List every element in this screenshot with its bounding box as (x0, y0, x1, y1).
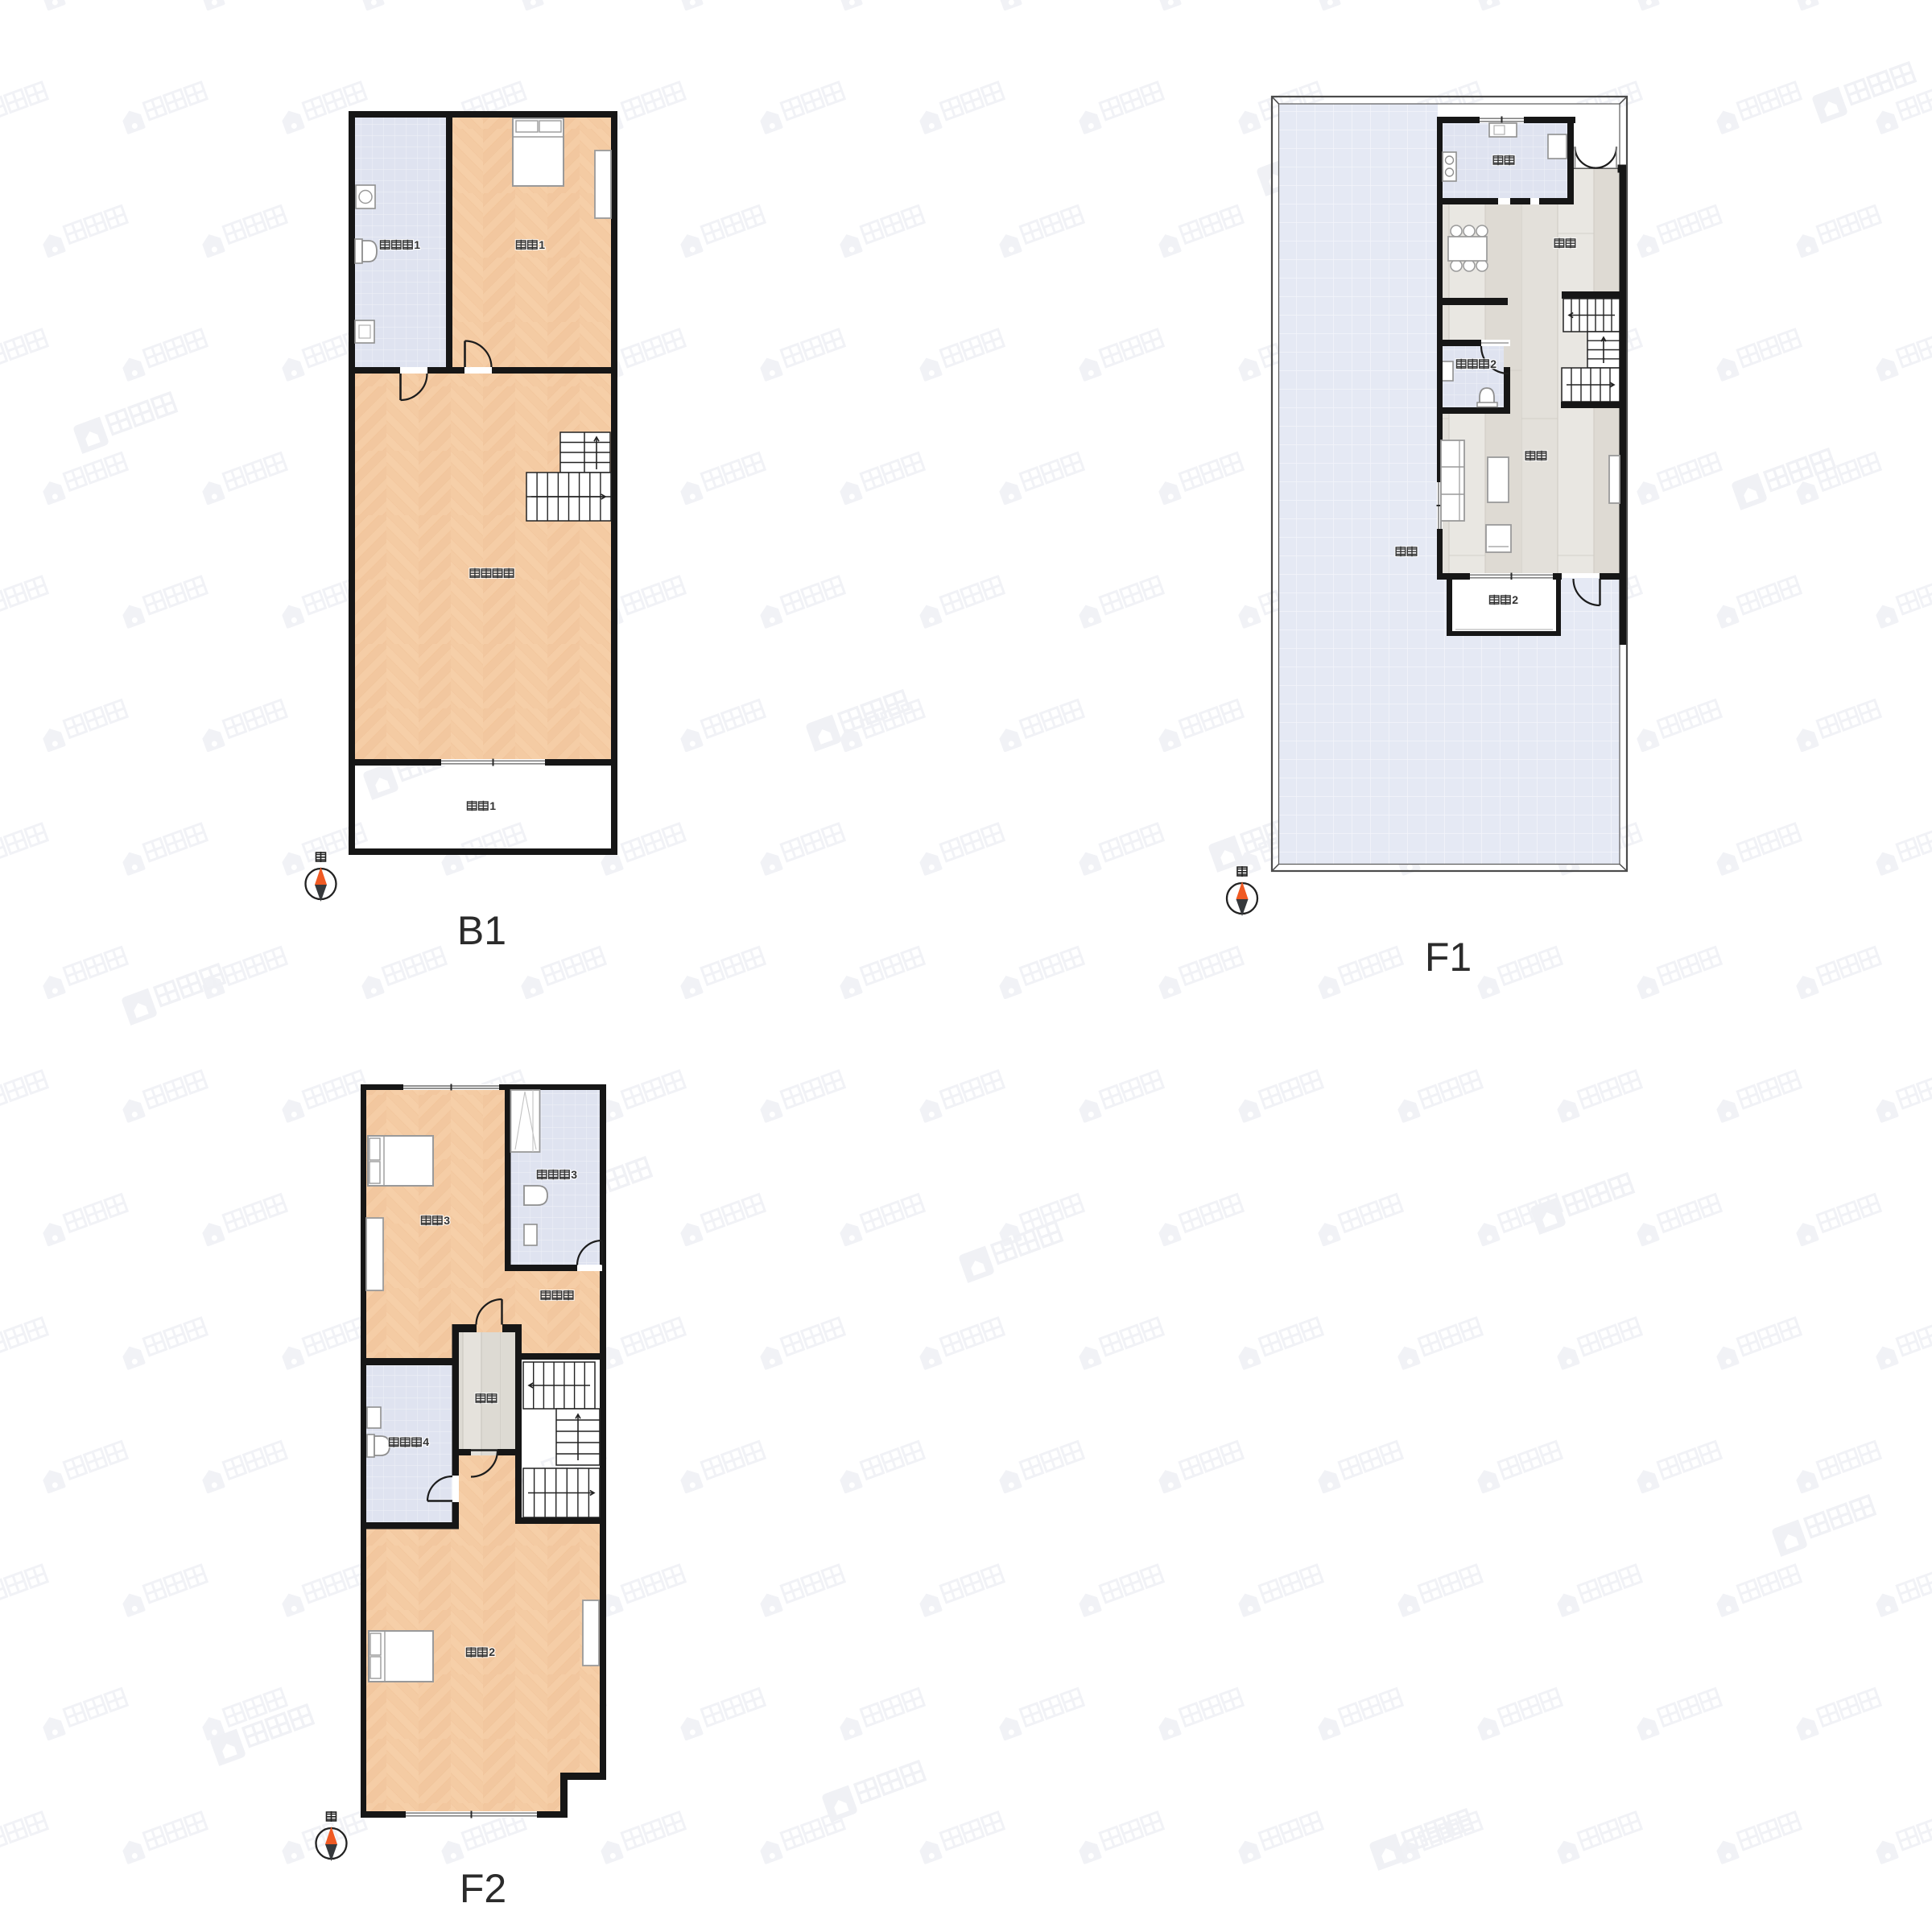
svg-text:1: 1 (539, 238, 545, 251)
svg-text:3: 3 (571, 1168, 577, 1181)
svg-text:4: 4 (423, 1435, 429, 1448)
svg-text:B1: B1 (457, 908, 506, 953)
svg-text:2: 2 (1512, 593, 1518, 606)
svg-text:2: 2 (1490, 357, 1496, 370)
svg-text:3: 3 (444, 1214, 450, 1227)
svg-text:1: 1 (414, 238, 420, 251)
svg-text:1: 1 (489, 799, 496, 812)
svg-text:F2: F2 (460, 1866, 506, 1911)
svg-text:2: 2 (489, 1645, 495, 1658)
svg-text:F1: F1 (1425, 935, 1472, 980)
